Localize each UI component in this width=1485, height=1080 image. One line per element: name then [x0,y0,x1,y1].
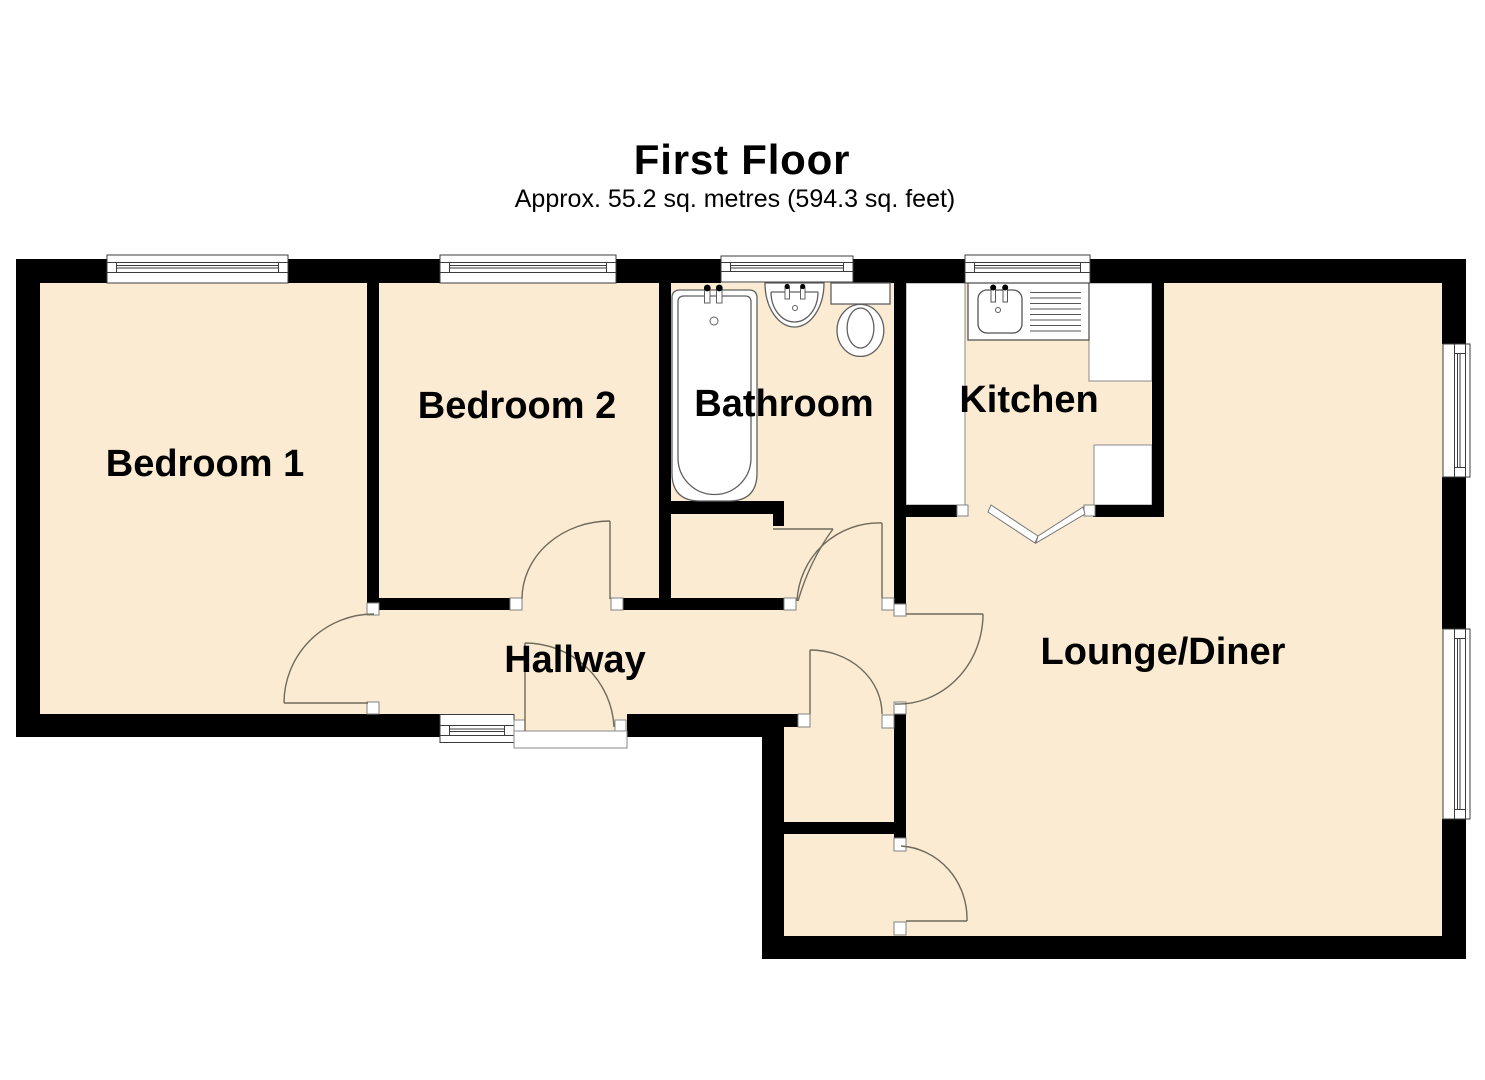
svg-text:Lounge/Diner: Lounge/Diner [1041,631,1286,673]
svg-text:Bedroom 1: Bedroom 1 [106,443,304,485]
svg-text:Kitchen: Kitchen [959,379,1098,421]
svg-text:Bathroom: Bathroom [694,383,873,425]
svg-text:Bedroom 2: Bedroom 2 [418,385,616,427]
svg-text:Hallway: Hallway [504,639,646,681]
svg-text:Approx. 55.2 sq. metres (594.3: Approx. 55.2 sq. metres (594.3 sq. feet) [515,185,956,213]
svg-text:First Floor: First Floor [634,136,850,183]
